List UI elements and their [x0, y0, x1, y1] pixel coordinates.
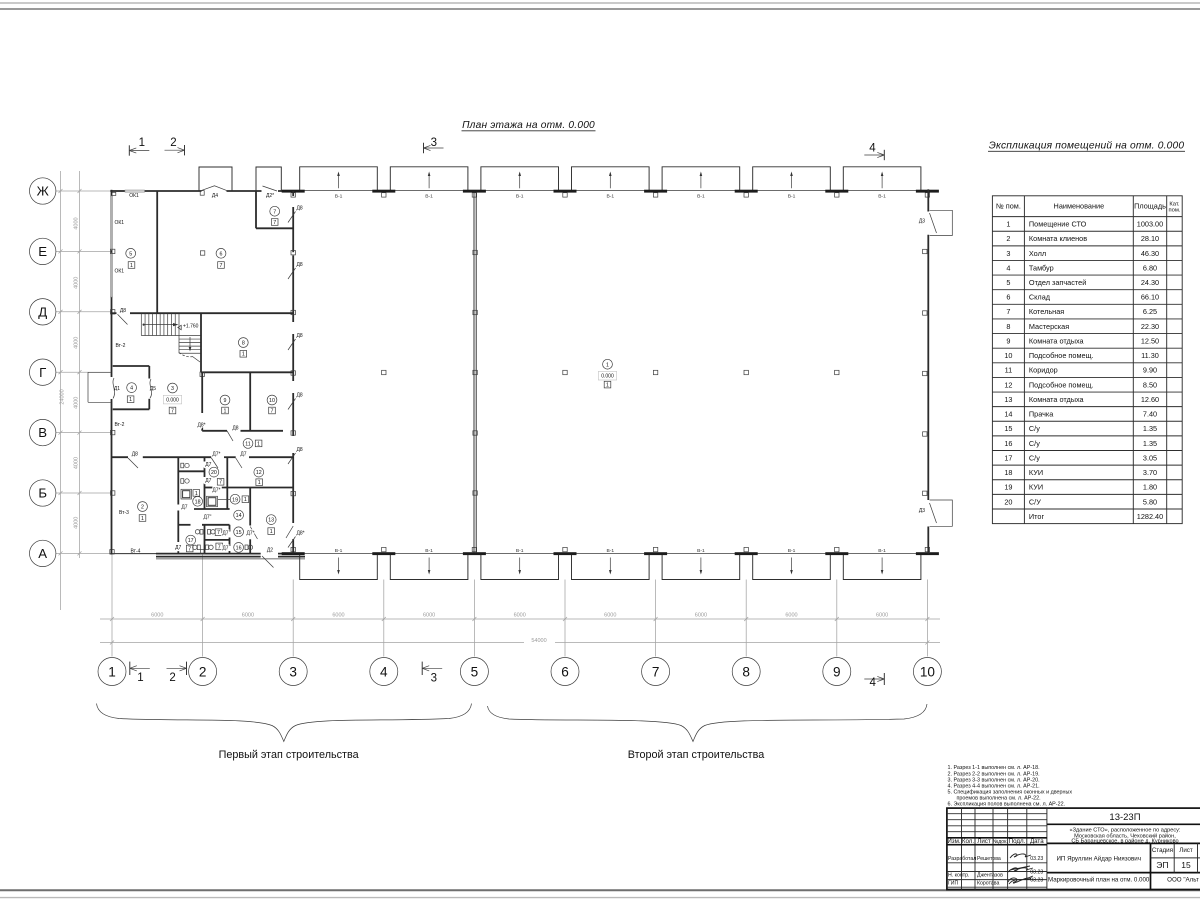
svg-text:КУИ: КУИ	[1029, 483, 1043, 492]
svg-text:Наименование: Наименование	[1054, 202, 1105, 211]
svg-text:15: 15	[1181, 860, 1191, 870]
svg-text:03.23: 03.23	[1030, 877, 1043, 883]
svg-text:Д8*: Д8*	[198, 422, 206, 428]
svg-text:7: 7	[171, 408, 174, 414]
svg-text:В-1: В-1	[697, 193, 705, 199]
svg-text:22.30: 22.30	[1141, 322, 1159, 331]
svg-text:14: 14	[1004, 410, 1012, 419]
svg-text:7: 7	[652, 664, 660, 679]
svg-text:Д2*: Д2*	[266, 193, 274, 199]
svg-text:9: 9	[833, 664, 841, 679]
svg-text:Д8: Д8	[297, 206, 303, 212]
svg-text:Изм.: Изм.	[947, 838, 961, 845]
svg-text:4000: 4000	[73, 217, 79, 229]
svg-text:Лист: Лист	[977, 838, 991, 845]
svg-text:8: 8	[1006, 322, 1010, 331]
svg-text:Д8: Д8	[232, 425, 238, 431]
svg-text:5: 5	[129, 251, 132, 257]
svg-text:4000: 4000	[73, 337, 79, 349]
svg-text:Первый этап строительства: Первый этап строительства	[219, 749, 359, 761]
svg-text:17: 17	[188, 538, 194, 544]
svg-text:Д4: Д4	[212, 193, 218, 199]
svg-text:Д7: Д7	[222, 546, 228, 552]
svg-text:В: В	[38, 425, 47, 440]
svg-text:6000: 6000	[514, 613, 526, 619]
svg-text:6000: 6000	[785, 613, 797, 619]
svg-text:Отдел запчастей: Отдел запчастей	[1029, 278, 1086, 287]
svg-text:Д7: Д7	[222, 531, 228, 537]
svg-text:В-1: В-1	[606, 548, 614, 554]
svg-text:7: 7	[273, 220, 276, 226]
svg-text:Холл: Холл	[1029, 249, 1046, 258]
svg-text:пом.: пом.	[1168, 208, 1180, 214]
svg-text:Д8: Д8	[120, 308, 126, 314]
svg-text:7: 7	[273, 209, 276, 215]
svg-text:4: 4	[380, 664, 388, 679]
svg-text:13-23П: 13-23П	[1109, 812, 1140, 823]
svg-text:Прачка: Прачка	[1029, 410, 1054, 419]
svg-text:3.70: 3.70	[1143, 468, 1157, 477]
svg-text:2: 2	[169, 672, 175, 684]
svg-text:Е: Е	[38, 244, 47, 259]
svg-text:Коротава: Коротава	[977, 880, 999, 886]
svg-text:4000: 4000	[73, 277, 79, 289]
svg-text:6. Экспликация полов выполнена: 6. Экспликация полов выполнена см. л. АР…	[948, 802, 1066, 808]
svg-text:1: 1	[139, 137, 145, 149]
svg-text:18: 18	[1004, 468, 1012, 477]
svg-text:10: 10	[269, 398, 275, 404]
svg-text:13: 13	[268, 518, 274, 524]
svg-text:В-1: В-1	[516, 548, 524, 554]
svg-text:Д3: Д3	[919, 219, 925, 225]
svg-text:Мастерская: Мастерская	[1029, 322, 1069, 331]
svg-text:С/У: С/У	[1029, 497, 1041, 506]
svg-text:10: 10	[1004, 351, 1012, 360]
svg-text:2: 2	[170, 137, 176, 149]
svg-text:В-1: В-1	[878, 193, 886, 199]
svg-text:Д8: Д8	[297, 447, 303, 453]
svg-text:Котельная: Котельная	[1029, 307, 1064, 316]
svg-text:2: 2	[1006, 234, 1010, 243]
svg-text:СБ Баранцевское, в районе д. К: СБ Баранцевское, в районе д. Курниково	[1071, 837, 1178, 844]
svg-text:Кат.: Кат.	[1169, 202, 1179, 208]
svg-text:Д7*: Д7*	[212, 488, 220, 494]
svg-text:11.30: 11.30	[1141, 351, 1159, 360]
svg-text:Д5: Д5	[150, 386, 156, 392]
svg-text:Д1: Д1	[114, 386, 120, 392]
svg-text:16: 16	[1004, 439, 1012, 448]
svg-text:Д7: Д7	[205, 462, 211, 468]
svg-text:6: 6	[561, 664, 569, 679]
svg-text:24000: 24000	[60, 389, 66, 404]
svg-text:3: 3	[171, 386, 174, 392]
svg-text:7: 7	[271, 408, 274, 414]
svg-text:Д8: Д8	[297, 333, 303, 339]
svg-text:Н. контр.: Н. контр.	[948, 873, 969, 879]
svg-text:4: 4	[869, 143, 876, 155]
svg-text:+1.760: +1.760	[183, 324, 199, 330]
svg-text:46.30: 46.30	[1141, 249, 1159, 258]
svg-text:1.35: 1.35	[1143, 439, 1157, 448]
svg-text:ИП Яруллин Айдар Ниязович: ИП Яруллин Айдар Ниязович	[1056, 856, 1140, 863]
svg-text:1: 1	[606, 383, 609, 389]
svg-text:Д3: Д3	[919, 508, 925, 514]
svg-text:Джентазов: Джентазов	[977, 873, 1003, 879]
svg-text:16: 16	[236, 546, 242, 552]
svg-text:Комната отдыха: Комната отдыха	[1029, 395, 1085, 404]
svg-text:Склад: Склад	[1029, 293, 1051, 302]
svg-text:1: 1	[258, 480, 261, 486]
svg-text:Решетова: Решетова	[977, 856, 1001, 862]
svg-text:7: 7	[188, 546, 191, 552]
svg-text:8.50: 8.50	[1143, 380, 1157, 389]
svg-text:54000: 54000	[531, 638, 546, 644]
svg-text:Д7*: Д7*	[247, 531, 255, 537]
svg-text:5.80: 5.80	[1143, 497, 1157, 506]
svg-text:Д7": Д7"	[204, 514, 212, 520]
svg-text:28.10: 28.10	[1141, 234, 1159, 243]
svg-text:Комната отдыха: Комната отдыха	[1029, 336, 1085, 345]
svg-text:Подсобное помещ.: Подсобное помещ.	[1029, 351, 1094, 360]
svg-text:3.05: 3.05	[1143, 453, 1157, 462]
svg-text:В-1: В-1	[788, 548, 796, 554]
svg-text:66.10: 66.10	[1141, 293, 1159, 302]
svg-text:3: 3	[431, 673, 437, 685]
svg-text:12.50: 12.50	[1141, 336, 1159, 345]
svg-text:В-1: В-1	[788, 193, 796, 199]
svg-text:Лист: Лист	[1179, 847, 1193, 854]
svg-text:Дата: Дата	[1030, 838, 1044, 845]
svg-text:Д7: Д7	[181, 504, 187, 510]
svg-text:2: 2	[199, 664, 207, 679]
svg-text:6: 6	[220, 251, 223, 257]
svg-text:В-1: В-1	[606, 193, 614, 199]
svg-text:Д7*: Д7*	[212, 451, 220, 457]
svg-text:Вт-2: Вт-2	[115, 422, 125, 428]
svg-text:1003.00: 1003.00	[1137, 220, 1163, 229]
svg-text:Подл.: Подл.	[1009, 838, 1026, 845]
svg-text:1: 1	[137, 672, 143, 684]
svg-text:1: 1	[130, 263, 133, 269]
svg-text:03.23: 03.23	[1030, 856, 1043, 862]
svg-text:15: 15	[236, 530, 242, 536]
svg-text:12: 12	[1004, 380, 1012, 389]
svg-text:6000: 6000	[151, 613, 163, 619]
svg-text:6000: 6000	[604, 613, 616, 619]
svg-text:2: 2	[141, 505, 144, 511]
svg-text:18: 18	[195, 499, 201, 505]
svg-text:9: 9	[1006, 336, 1010, 345]
svg-text:8: 8	[242, 341, 245, 347]
svg-text:1282.40: 1282.40	[1137, 512, 1163, 521]
svg-text:11: 11	[1005, 366, 1013, 375]
svg-text:5: 5	[471, 664, 479, 679]
svg-text:1: 1	[141, 516, 144, 522]
svg-text:В-1: В-1	[697, 548, 705, 554]
svg-text:Д8: Д8	[297, 262, 303, 268]
svg-text:1.80: 1.80	[1143, 483, 1157, 492]
svg-text:7.40: 7.40	[1143, 410, 1157, 419]
svg-text:Д: Д	[38, 304, 47, 319]
svg-text:1: 1	[242, 352, 245, 358]
svg-text:19: 19	[1004, 483, 1012, 492]
svg-text:В-1: В-1	[335, 193, 343, 199]
svg-text:С/у: С/у	[1029, 453, 1040, 462]
svg-text:20: 20	[211, 470, 217, 476]
svg-text:С/у: С/у	[1029, 424, 1040, 433]
svg-text:1: 1	[244, 497, 247, 503]
svg-text:ООО "Альт: ООО "Альт	[1167, 877, 1199, 884]
svg-text:Д7: Д7	[205, 478, 211, 484]
svg-text:1.35: 1.35	[1143, 424, 1157, 433]
svg-text:6000: 6000	[876, 613, 888, 619]
svg-text:6.25: 6.25	[1143, 307, 1157, 316]
svg-text:7: 7	[217, 530, 220, 536]
svg-text:Д7: Д7	[240, 451, 246, 457]
svg-text:Вт-3: Вт-3	[119, 510, 129, 516]
svg-text:Д8: Д8	[132, 451, 138, 457]
svg-text:14: 14	[236, 513, 242, 519]
svg-text:Д8: Д8	[297, 393, 303, 399]
svg-text:Б: Б	[38, 486, 47, 501]
svg-text:Г: Г	[39, 365, 46, 380]
svg-text:Стадия: Стадия	[1152, 847, 1173, 854]
svg-text:А: А	[38, 546, 47, 561]
svg-text:1: 1	[129, 397, 132, 403]
svg-text:0.000: 0.000	[166, 398, 179, 404]
svg-text:Экспликация помещений на отм.: Экспликация помещений на отм. 0.000	[989, 141, 1185, 152]
svg-text:8: 8	[742, 664, 750, 679]
svg-text:15: 15	[1004, 424, 1012, 433]
svg-text:ЭП: ЭП	[1156, 860, 1168, 870]
svg-text:ОК1: ОК1	[129, 193, 139, 199]
svg-text:Д2: Д2	[267, 548, 273, 554]
svg-text:Коридор: Коридор	[1029, 366, 1058, 375]
svg-text:1: 1	[257, 441, 260, 447]
svg-text:Ж: Ж	[37, 184, 49, 199]
svg-text:11: 11	[245, 442, 251, 448]
svg-text:4: 4	[130, 386, 133, 392]
svg-text:В-1: В-1	[335, 548, 343, 554]
svg-text:03.23: 03.23	[1030, 870, 1043, 876]
svg-text:4000: 4000	[73, 457, 79, 469]
svg-text:ГИП: ГИП	[948, 880, 959, 886]
svg-text:Кол.: Кол.	[962, 838, 975, 845]
svg-text:1: 1	[606, 362, 609, 368]
svg-text:12: 12	[256, 470, 262, 476]
svg-text:4: 4	[1006, 263, 1010, 272]
svg-text:6000: 6000	[695, 613, 707, 619]
svg-text:Площадь: Площадь	[1134, 202, 1166, 211]
svg-text:ОК1: ОК1	[115, 220, 125, 226]
svg-text:7: 7	[220, 263, 223, 269]
svg-text:10: 10	[920, 664, 936, 679]
svg-text:Итог: Итог	[1029, 512, 1045, 521]
svg-text:3: 3	[1006, 249, 1010, 258]
svg-text:12.60: 12.60	[1141, 395, 1159, 404]
svg-text:Второй этап строительства: Второй этап строительства	[628, 749, 764, 761]
svg-text:Д8*: Д8*	[297, 531, 305, 537]
svg-text:0.000: 0.000	[601, 374, 614, 380]
svg-text:1: 1	[224, 408, 227, 414]
svg-text:17: 17	[1004, 453, 1012, 462]
svg-text:№док.: №док.	[993, 839, 1008, 845]
svg-text:Помещение СТО: Помещение СТО	[1029, 220, 1087, 229]
svg-text:6: 6	[1006, 293, 1010, 302]
svg-text:Подсобное помещ.: Подсобное помещ.	[1029, 380, 1094, 389]
svg-text:1: 1	[195, 491, 198, 497]
svg-text:ОК1: ОК1	[115, 269, 125, 275]
svg-text:Разработал: Разработал	[948, 856, 976, 862]
svg-text:Тамбур: Тамбур	[1029, 263, 1054, 272]
svg-text:20: 20	[1004, 497, 1012, 506]
svg-text:6000: 6000	[423, 613, 435, 619]
svg-text:9.90: 9.90	[1143, 366, 1157, 375]
svg-text:4000: 4000	[73, 517, 79, 529]
svg-text:Комната клиенов: Комната клиенов	[1029, 234, 1087, 243]
svg-text:В-1: В-1	[425, 193, 433, 199]
svg-text:7: 7	[218, 544, 221, 550]
svg-text:5: 5	[1006, 278, 1010, 287]
svg-text:КУИ: КУИ	[1029, 468, 1043, 477]
svg-text:9: 9	[224, 398, 227, 404]
svg-text:В-1: В-1	[516, 193, 524, 199]
svg-text:1: 1	[270, 529, 273, 535]
svg-text:1: 1	[1006, 220, 1010, 229]
svg-text:6.80: 6.80	[1143, 263, 1157, 272]
svg-text:В-1: В-1	[878, 548, 886, 554]
svg-text:С/у: С/у	[1029, 439, 1040, 448]
svg-text:В-1: В-1	[425, 548, 433, 554]
svg-text:3: 3	[289, 664, 297, 679]
svg-text:4000: 4000	[73, 397, 79, 409]
svg-text:19: 19	[232, 497, 238, 503]
svg-text:1: 1	[108, 664, 116, 679]
svg-text:6000: 6000	[242, 613, 254, 619]
svg-text:Вт-4: Вт-4	[131, 549, 141, 555]
svg-text:24.30: 24.30	[1141, 278, 1159, 287]
svg-text:6000: 6000	[332, 613, 344, 619]
svg-text:Д7: Д7	[175, 545, 181, 551]
svg-text:7: 7	[1006, 307, 1010, 316]
svg-text:7: 7	[219, 480, 222, 486]
svg-text:№ пом.: № пом.	[996, 202, 1021, 211]
svg-text:13: 13	[1004, 395, 1012, 404]
svg-text:4: 4	[869, 677, 876, 689]
svg-text:Маркировочный план на отм. 0.0: Маркировочный план на отм. 0.000	[1048, 877, 1150, 884]
svg-text:Вт-2: Вт-2	[116, 343, 126, 349]
svg-text:3: 3	[431, 137, 437, 149]
svg-text:План этажа на отм. 0.000: План этажа на отм. 0.000	[462, 120, 595, 131]
